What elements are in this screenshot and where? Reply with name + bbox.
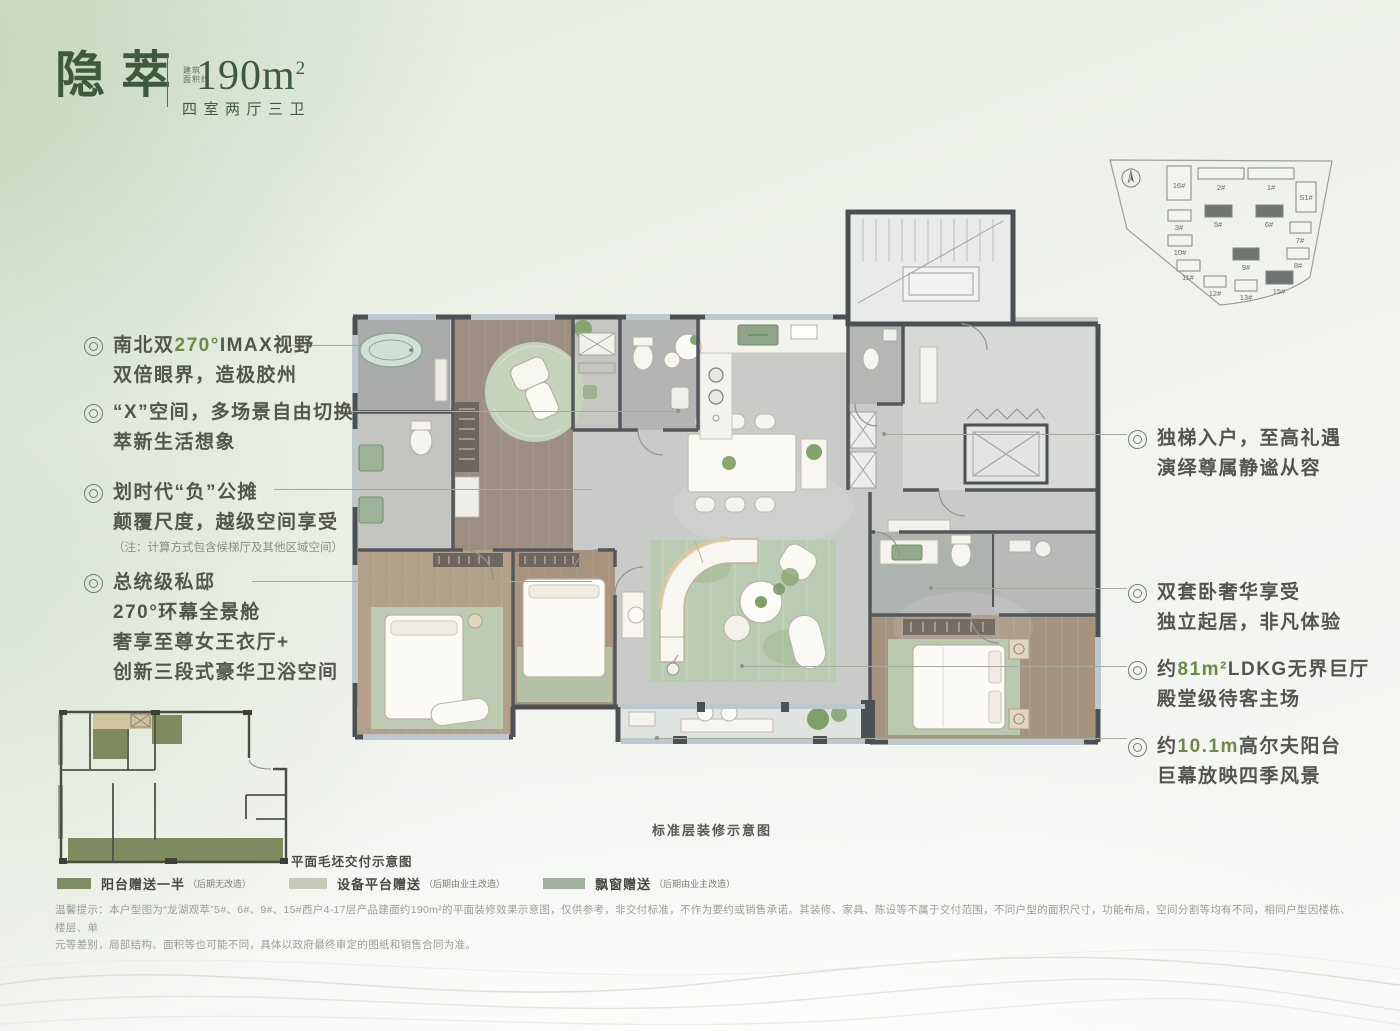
poster-page: 隐萃 建筑 面积约 190m2 四室两厅三卫 [0,0,1400,1031]
annotation-text: 南北双270°IMAX视野 [113,331,314,361]
legend-item-balcony: 阳台赠送一半 （后期无改造） [57,874,251,893]
title-divider [167,55,168,107]
annotation-text: 演绎尊属静谧从容 [1128,454,1342,484]
annotation-golf-balcony: 约10.1m高尔夫阳台 巨幕放映四季风景 [1128,732,1341,792]
svg-text:7#: 7# [1296,236,1305,245]
annotation-text: 约81m²LDKG无界巨厅 [1157,655,1370,685]
caption-bare-plan: 平面毛坯交付示意图 [291,851,413,870]
entry-shoe-cabinet [920,347,937,403]
annotation-text: 殿堂级待客主场 [1128,685,1370,715]
legend-note: （后期无改造） [188,877,251,890]
ring-icon [84,404,103,423]
ring-icon [84,484,103,503]
leader-line [657,738,1127,739]
svg-text:10#: 10# [1174,248,1187,257]
annotation-shared-area: 划时代“负”公摊 颠覆尺度，越级空间享受 （注：计算方式包含候梯厅及其他区域空间… [84,478,343,558]
bare-shell-plan [55,688,290,868]
annotation-x-space: “X”空间，多场景自由切换 萃新生活想象 [84,398,354,458]
annotation-text: 双套卧奢华享受 [1157,578,1301,608]
svg-text:11#: 11# [1182,273,1195,282]
svg-text:9#: 9# [1242,263,1251,272]
svg-text:16#: 16# [1173,181,1186,190]
layout-type: 四室两厅三卫 [182,98,311,119]
annotation-imax-view: 南北双270°IMAX视野 双倍眼界，造极胶州 [84,331,314,391]
legend-label: 设备平台赠送 [337,874,421,893]
annotation-ldkg-hall: 约81m²LDKG无界巨厅 殿堂级待客主场 [1128,655,1370,715]
annotation-private-elevator: 独梯入户，至高礼遇 演绎尊属静谧从容 [1128,424,1342,484]
legend-label: 阳台赠送一半 [101,874,185,893]
svg-text:6#: 6# [1265,220,1274,229]
annotation-note: （注：计算方式包含候梯厅及其他区域空间） [84,538,343,558]
svg-text:S1#: S1# [1299,193,1313,202]
annotation-text: 划时代“负”公摊 [113,478,258,508]
annotation-text: 270°环幕全景舱 [84,598,339,628]
leader-line [931,588,1127,589]
leader-dot [882,432,886,436]
annotation-text: 约10.1m高尔夫阳台 [1157,732,1341,762]
leader-dot [929,586,933,590]
svg-text:15#: 15# [1273,287,1286,296]
annotation-text: 颠覆尺度，越级空间享受 [84,508,343,538]
compass-icon [1122,169,1140,187]
ring-icon [1128,738,1147,757]
annotation-text: 奢享至尊女王衣厅+ [84,628,339,658]
leader-dot [676,409,680,413]
ring-icon [1128,661,1147,680]
ring-icon [84,337,103,356]
svg-text:2#: 2# [1217,183,1226,192]
legend-note: （后期由业主改造） [654,877,735,890]
ring-icon [84,574,103,593]
annotation-double-suites: 双套卧奢华享受 独立起居，非凡体验 [1128,578,1342,638]
legend-item-baywindow: 飘窗赠送 （后期由业主改造） [543,874,735,893]
leader-line [884,434,1127,435]
legend-item-platform: 设备平台赠送 （后期由业主改造） [289,874,505,893]
leader-line [334,411,678,412]
legend: 阳台赠送一半 （后期无改造） 设备平台赠送 （后期由业主改造） 飘窗赠送 （后期… [57,874,773,893]
ring-icon [1128,430,1147,449]
svg-text:3#: 3# [1175,223,1184,232]
annotation-master-suite: 总统级私邸 270°环幕全景舱 奢享至尊女王衣厅+ 创新三段式豪华卫浴空间 [84,568,339,688]
annotation-text: “X”空间，多场景自由切换 [113,398,354,428]
annotation-text: 独立起居，非凡体验 [1128,608,1342,638]
study-desk [622,592,644,638]
leader-dot [655,736,659,740]
svg-text:13#: 13# [1240,293,1253,302]
ring-icon [1128,584,1147,603]
area-value: 190m2 [196,52,306,100]
leader-line [742,666,1127,667]
svg-text:1#: 1# [1267,183,1276,192]
annotation-text: 双倍眼界，造极胶州 [84,361,314,391]
legend-note: （后期由业主改造） [424,877,505,890]
annotation-text: 创新三段式豪华卫浴空间 [84,658,339,688]
annotation-text: 独梯入户，至高礼遇 [1157,424,1342,454]
legend-label: 飘窗赠送 [595,874,651,893]
site-plan: 16# 2# 1# S1# 3# 5# 6# 7# 10# 9# 8# 11# … [1105,148,1367,312]
svg-text:5#: 5# [1214,220,1223,229]
annotation-text: 萃新生活想象 [84,428,354,458]
contour-decoration [0,930,1400,1031]
svg-text:8#: 8# [1294,261,1303,270]
svg-text:12#: 12# [1209,289,1222,298]
platform-swatch [289,878,327,889]
balcony-swatch [57,878,91,889]
leader-dot [740,664,744,668]
caption-standard-plan: 标准层装修示意图 [652,820,772,839]
annotation-text: 巨幕放映四季风景 [1128,762,1341,792]
annotation-text: 总统级私邸 [113,568,216,598]
baywindow-swatch [543,878,585,889]
